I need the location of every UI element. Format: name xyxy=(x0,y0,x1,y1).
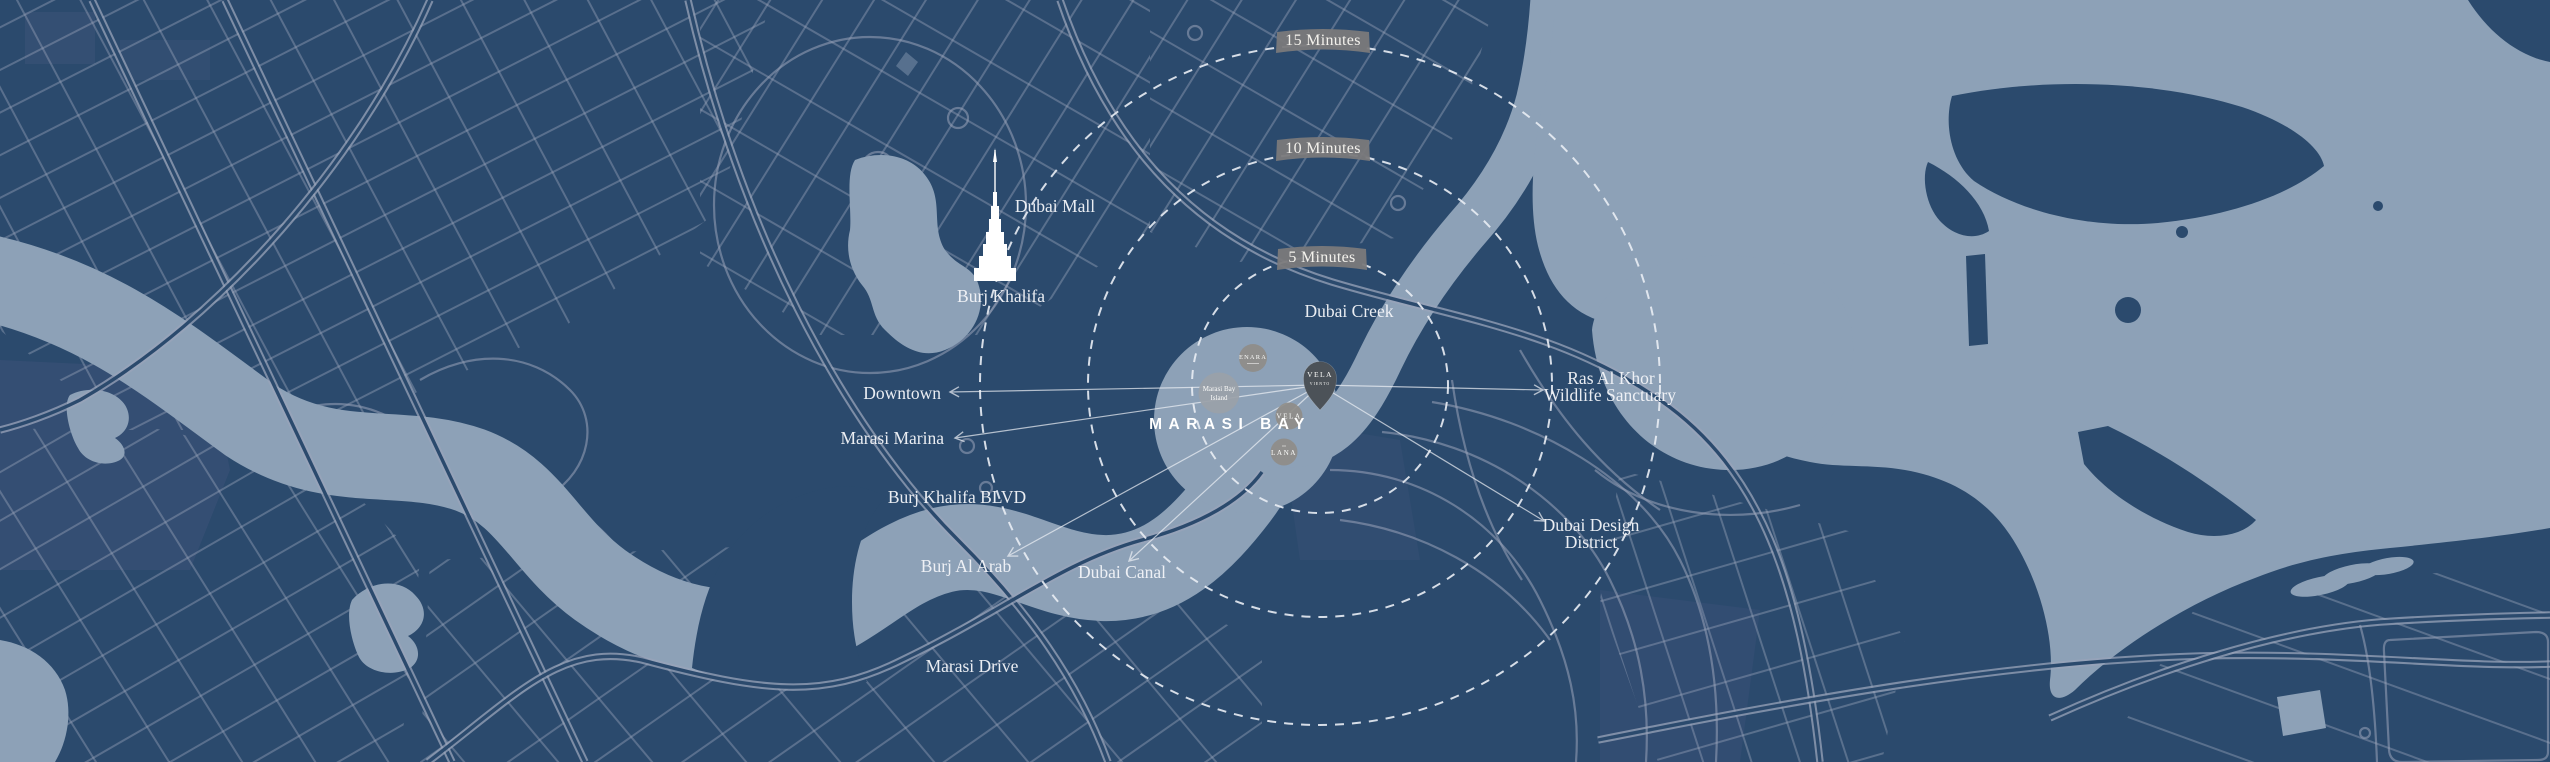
pin-label-2: VIENTO xyxy=(1310,382,1330,386)
label-dubai-creek: Dubai Creek xyxy=(1305,301,1394,321)
label-burj-al-arab: Burj Al Arab xyxy=(921,556,1012,576)
label-dubai-canal: Dubai Canal xyxy=(1078,562,1166,582)
badge-5-minutes-label: 5 Minutes xyxy=(1288,249,1355,266)
map-canvas: 15 Minutes 10 Minutes 5 Minutes ENARA Ma… xyxy=(0,0,2550,762)
label-design-district-2: District xyxy=(1565,532,1618,552)
label-dubai-mall: Dubai Mall xyxy=(1015,196,1095,216)
badge-5-minutes: 5 Minutes xyxy=(1277,246,1367,270)
marker-island-label-1: Marasi Bay xyxy=(1203,385,1236,393)
marker-lana[interactable]: LANA xyxy=(1271,439,1298,466)
badge-10-minutes-label: 10 Minutes xyxy=(1285,140,1360,157)
marker-enara-label: ENARA xyxy=(1239,354,1267,361)
pin-label-1: VELA xyxy=(1307,370,1333,379)
marker-marasi-bay-island[interactable]: Marasi Bay Island xyxy=(1199,373,1240,414)
badge-10-minutes: 10 Minutes xyxy=(1276,137,1370,161)
label-burj-khalifa: Burj Khalifa xyxy=(957,286,1045,306)
marker-island-label-2: Island xyxy=(1210,394,1228,402)
label-marasi-marina: Marasi Marina xyxy=(840,428,944,448)
badge-15-minutes-label: 15 Minutes xyxy=(1285,32,1360,49)
badge-15-minutes: 15 Minutes xyxy=(1276,29,1370,53)
label-downtown: Downtown xyxy=(863,383,941,403)
label-burj-khalifa-blvd: Burj Khalifa BLVD xyxy=(888,487,1026,507)
label-marasi-drive: Marasi Drive xyxy=(926,656,1019,676)
map-stage: 15 Minutes 10 Minutes 5 Minutes ENARA Ma… xyxy=(0,0,2550,762)
marker-enara[interactable]: ENARA xyxy=(1239,344,1267,372)
label-marasi-bay-area: MARASI BAY xyxy=(1149,416,1311,433)
label-ras-al-khor-2: Wildlife Sanctuary xyxy=(1544,385,1676,405)
marker-lana-label: LANA xyxy=(1271,449,1297,457)
